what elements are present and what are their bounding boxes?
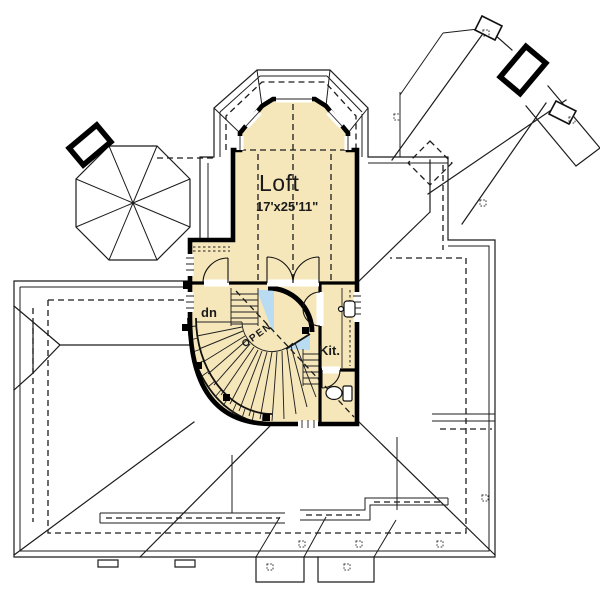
porch-roofs-and-steps [98, 437, 488, 582]
turret-roof [69, 125, 190, 260]
floor-plan-drawing [0, 0, 600, 600]
toilet-bowl-icon [326, 387, 342, 400]
toilet-tank-icon [343, 386, 352, 401]
floor-plan-page: Loft 17'x25'11" dn OPEN Kit. [0, 0, 600, 600]
chimney-icon [500, 46, 546, 93]
skylight-icon [475, 16, 502, 40]
sink-icon [344, 301, 355, 317]
gable-wing-roof [392, 16, 600, 224]
skylight-icon [549, 101, 576, 124]
chimney-icon [69, 125, 111, 165]
kitchen-label: Kit. [319, 343, 340, 358]
loft-room-label: Loft [259, 170, 299, 197]
faucet-icon [339, 307, 344, 312]
loft-dimensions-label: 17'x25'11" [256, 199, 318, 214]
stair-down-label: dn [201, 305, 217, 320]
